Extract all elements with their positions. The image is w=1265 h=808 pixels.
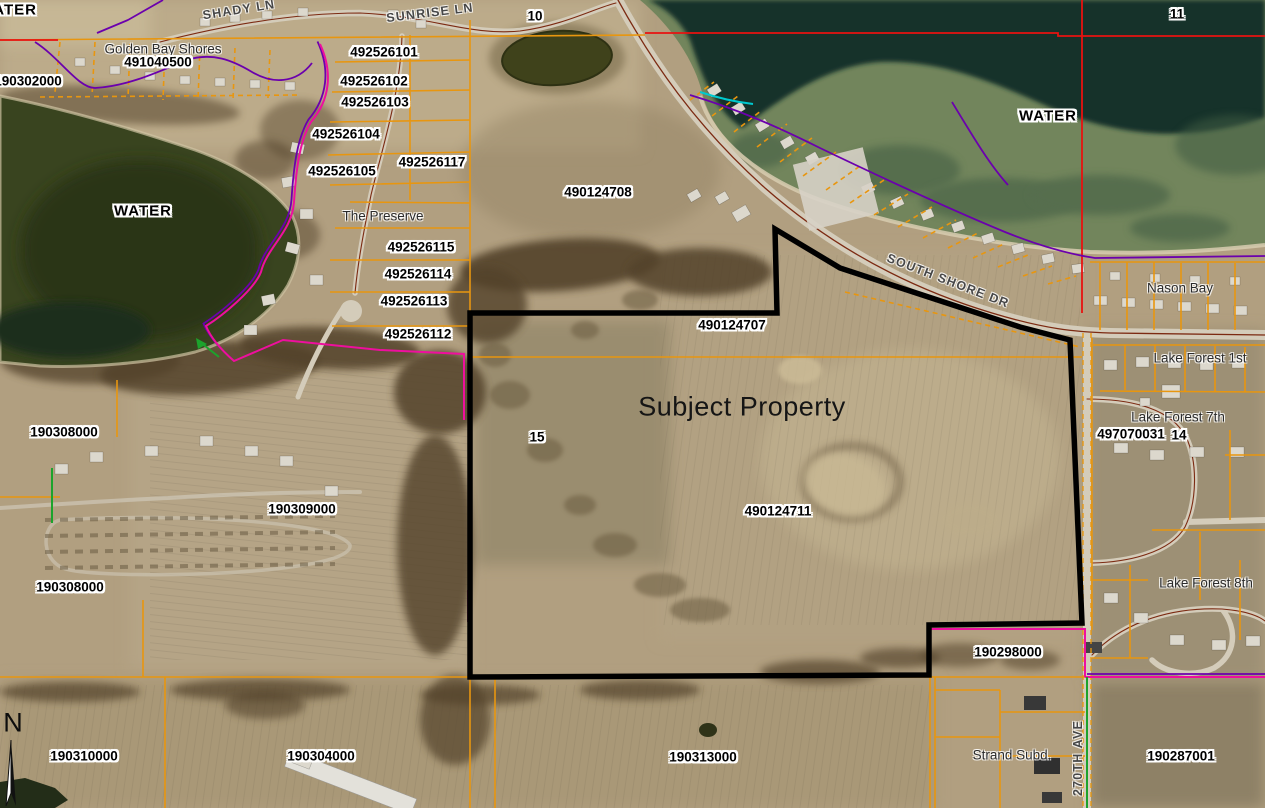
water-label-top-left: WATER [0,3,37,18]
water-label-right: WATER [1019,109,1077,124]
parcel-190313000: 190313000 [669,750,737,764]
street-south-shore-dr: SOUTH SHORE DR [885,252,1011,310]
parcel-490124711: 490124711 [745,504,812,518]
water-label-left: WATER [114,204,172,219]
parcel-190310000: 190310000 [50,749,118,763]
parcel-492526113: 492526113 [381,294,448,308]
parcel-492526114: 492526114 [385,267,452,281]
parcel-190302000: 190302000 [0,74,62,88]
parcel-492526102: 492526102 [340,74,408,88]
subdiv-nason-bay: Nason Bay [1147,281,1213,295]
section-10: 10 [527,9,542,23]
parcel-490124707: 490124707 [698,318,766,332]
section-14: 14 [1171,428,1186,442]
parcel-492526103: 492526103 [341,95,409,109]
subdiv-lake-forest-7th: Lake Forest 7th [1131,410,1225,424]
street-shady-ln: SHADY LN [202,0,276,22]
parcel-190308000-north: 190308000 [30,425,98,439]
parcel-492526104: 492526104 [312,127,380,141]
section-11: 11 [1170,7,1184,21]
subdiv-lake-forest-1st: Lake Forest 1st [1153,351,1246,365]
street-270th-ave: 270TH AVE [1072,720,1085,796]
parcel-190308000-south: 190308000 [36,580,104,594]
subdiv-lake-forest-8th: Lake Forest 8th [1159,576,1253,590]
compass-n: N [3,710,23,737]
subject-property-title: Subject Property [638,394,846,421]
parcel-map: WATERSHADY LNSUNRISE LN1011Golden Bay Sh… [0,0,1265,808]
parcel-492526101: 492526101 [350,45,418,59]
parcel-491040500: 491040500 [124,55,192,69]
parcel-190304000: 190304000 [287,749,355,763]
street-sunrise-ln: SUNRISE LN [386,1,475,24]
parcel-497070031: 497070031 [1097,427,1165,441]
parcel-492526115: 492526115 [388,240,455,254]
parcel-190309000: 190309000 [268,502,336,516]
parcel-492526117: 492526117 [399,155,466,169]
subdiv-strand-subd: Strand Subd. [973,748,1052,762]
subdiv-the-preserve: The Preserve [342,209,423,223]
map-label-layer: WATERSHADY LNSUNRISE LN1011Golden Bay Sh… [0,0,1265,808]
parcel-492526105: 492526105 [308,164,376,178]
section-15: 15 [529,430,544,444]
parcel-190298000: 190298000 [974,645,1042,659]
parcel-492526112: 492526112 [385,327,452,341]
parcel-190287001: 190287001 [1147,749,1215,763]
parcel-490124708: 490124708 [564,185,632,199]
